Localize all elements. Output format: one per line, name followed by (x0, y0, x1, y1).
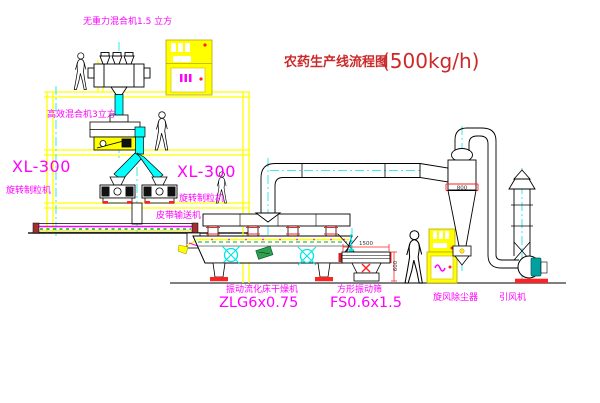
label-high-efficiency-mixer: 高效混合机3立方 (47, 108, 116, 120)
fluid-bed-dryer (193, 214, 352, 281)
label-sieve-model: FS0.6x1.5 (330, 295, 402, 311)
person-second-floor (155, 112, 168, 150)
sieve-height-dim: 600 (393, 260, 399, 271)
label-dryer-name: 振动流化床干燥机 (226, 283, 298, 295)
drawing-title: 农药生产线流程图 (283, 54, 388, 70)
induced-draft-fan (515, 256, 548, 283)
granulator-discharge-pipe (132, 203, 142, 224)
drawing-title-capacity: (500kg/h) (382, 49, 479, 73)
label-granulator-left-name: 旋转制粒机 (6, 184, 51, 196)
label-granulator-right-model: XL-300 (177, 162, 236, 181)
label-dryer-model: ZLG6x0.75 (219, 295, 298, 311)
vibrating-sieve: 1500 600 (339, 241, 400, 281)
label-granulator-left-model: XL-300 (12, 157, 71, 176)
sieve-length-dim: 1500 (359, 241, 373, 247)
label-sieve-name: 方形振动筛 (337, 283, 382, 295)
person-top-floor (74, 53, 86, 90)
gravity-mixer (88, 53, 150, 116)
y-chute (114, 153, 163, 180)
control-cabinet-lower (427, 229, 457, 283)
granulator-right (142, 177, 177, 204)
process-flow-diagram: 1500 600 (0, 0, 600, 403)
label-granulator-right-name: 旋转制粒机 (179, 192, 224, 204)
high-efficiency-mixer (90, 115, 145, 154)
granulator-left (100, 177, 135, 204)
label-gravity-mixer: 无重力混合机1.5 立方 (83, 15, 172, 27)
dryer-exhaust-duct (256, 164, 420, 223)
cad-drawing-canvas: 1500 600 (0, 0, 600, 403)
label-fan: 引风机 (499, 291, 526, 303)
label-belt-conveyor: 皮带输送机 (156, 209, 201, 221)
label-cyclone: 旋风除尘器 (433, 291, 478, 303)
control-cabinet-upper (166, 40, 212, 95)
belt-conveyor (33, 223, 198, 233)
person-ground (405, 231, 422, 283)
